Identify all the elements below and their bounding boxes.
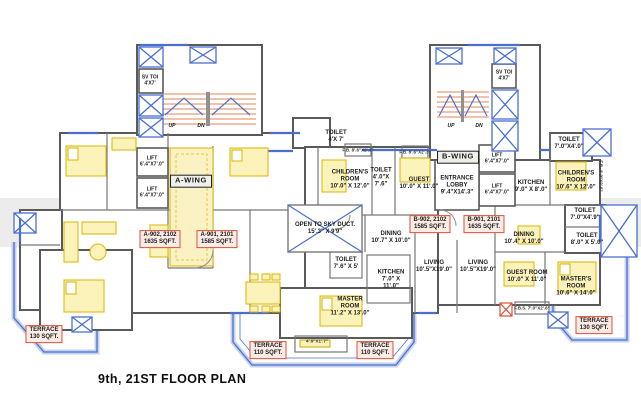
room-label-masters-room: MASTER'S ROOM10'.6" X 14'.0"	[556, 277, 595, 298]
room-label-master-room: MASTER ROOM11'.2" X 13'.0"	[331, 297, 370, 318]
terrace-label-right: TERRACE130 SQFT.	[575, 316, 612, 334]
lobby-carpet	[170, 148, 213, 266]
red-shaft-icon	[500, 303, 512, 316]
lift-label: LIFT6'.4"X7'.0"	[140, 156, 164, 168]
room-label-kitchen: KITCHEN7'.0" X 11'.0"	[378, 270, 405, 291]
room-label-living: LIVING10'.5"X19'.0"	[416, 260, 452, 274]
stair-up-label-a: UP	[169, 124, 176, 130]
lift-label: LIFT6'.4"X7'.0"	[140, 187, 164, 199]
unit-label-b901: B-901, 21011635 SQFT.	[463, 215, 504, 233]
stair-dn-label-a: DN	[197, 124, 204, 130]
room-label-living: LIVING10'.5"X19'.0"	[460, 260, 496, 274]
room-label-kitchen: KITCHEN9'.0" X 8'.0"	[515, 180, 548, 194]
unit-label-a901: A-901, 21011585 SQFT.	[196, 230, 237, 248]
room-label-guest-room: GUEST ROOM10'.0" X 11'.0"	[506, 270, 547, 284]
room-label-toilet: TOILET4'X 7'	[325, 130, 346, 144]
floor-plan-page: SV TOI4'X7' UP DN A-WING LIFT6'.4"X7'.0"…	[0, 0, 641, 402]
room-label-childrens-room: CHILDREN'S ROOM10'.6" X 12'.0"	[556, 171, 595, 192]
room-label-toilet: TOILET7'.0"X4'.9"	[570, 208, 599, 222]
fb-label: F.B. 8'.6"X2'.3"	[342, 147, 373, 152]
unit-label-b902: B-902, 21021585 SQFT.	[409, 215, 450, 233]
fb-label-vertical: F.B. 4'.0"X2'.6"	[598, 160, 603, 191]
room-label-dining: DINING10'.7" X 10'.0"	[371, 231, 410, 245]
room-label-toilet: TOILET4'.0"X 7'.6"	[370, 168, 391, 189]
terrace-label-left: TERRACE130 SQFT.	[25, 325, 62, 343]
unit-label-a902: A-902, 21021635 SQFT.	[139, 230, 180, 248]
terrace-label-center-right: TERRACE110 SQFT.	[356, 341, 393, 359]
sv-toilet-label-a: SV TOI4'X7'	[142, 75, 158, 87]
stair-dn-label-b: DN	[475, 124, 482, 130]
terrace-label-center-left: TERRACE110 SQFT.	[249, 341, 286, 359]
room-label-dining: DINING10'.4" X 10'.0"	[504, 232, 543, 246]
lift-label: LIFT6'.4"X7'.0"	[485, 184, 509, 196]
room-label-childrens-room: CHILDREN'S ROOM10'.0" X 12'.0"	[330, 170, 369, 191]
room-label-open-to-sky-duct: OPEN TO SKY DUCT.15'.3" X 9'9"	[295, 222, 355, 236]
room-label-guest: GUEST10'.0" X 11'.0"	[400, 177, 439, 191]
room-label-entrance-lobby: ENTRANCE LOBBY9'.4"X14'.3"	[440, 176, 473, 197]
fbs-label: F.B.S. 7'.0"X2'.6"	[514, 305, 549, 310]
lift-label: LIFT6'.4"X7'.0"	[485, 153, 509, 165]
room-label-toilet: TOILET7'.6" X 5'	[334, 257, 359, 271]
page-title: 9th, 21ST FLOOR PLAN	[98, 372, 246, 386]
stair-up-label-b: UP	[448, 124, 455, 130]
room-label-toilet: TOILET7'.0"X4'.0"	[554, 137, 583, 151]
a-wing-label: A-WING	[170, 175, 212, 188]
room-label-toilet: TOILET8'.0" X 5'.0"	[571, 233, 604, 247]
sv-toilet-label-b: SV TOI4'X7'	[496, 70, 512, 82]
step-dim-label: 4'.9"X1'.7"	[306, 338, 328, 343]
fb-label: F.B. 8'.6"X2'.3"	[399, 149, 430, 154]
b-wing-label: B-WING	[437, 151, 479, 164]
